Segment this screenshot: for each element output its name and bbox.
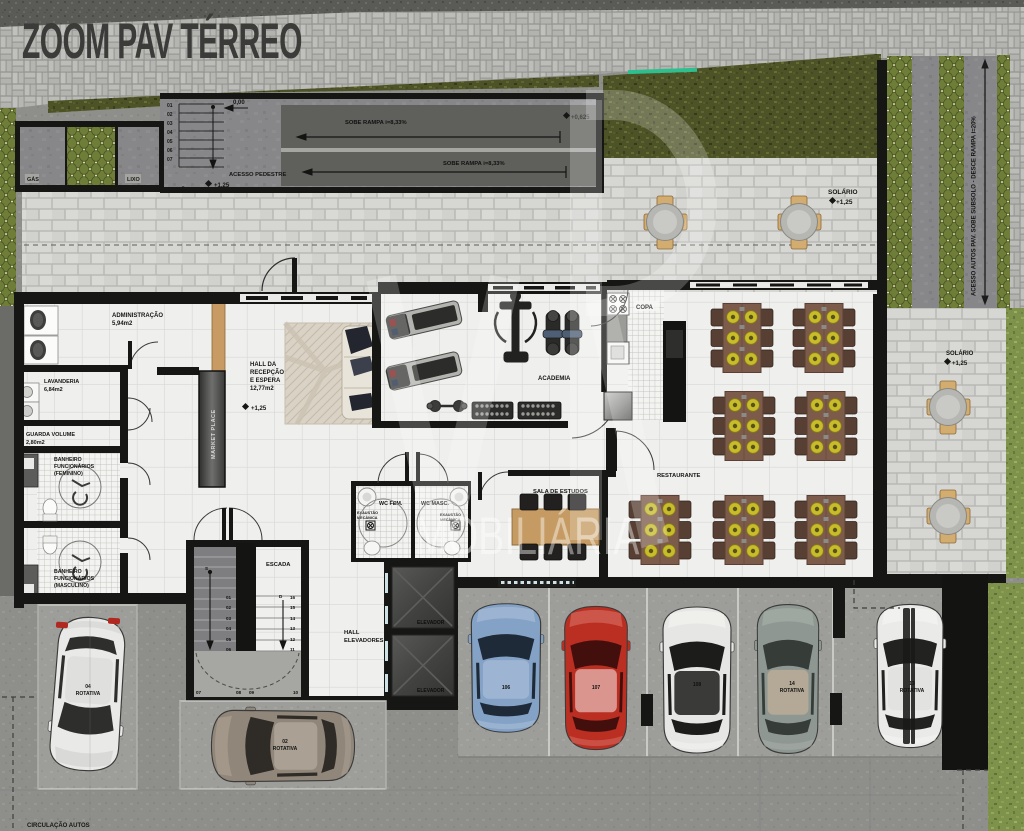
svg-text:6,84m2: 6,84m2 <box>44 387 63 393</box>
svg-text:BANHEIRO: BANHEIRO <box>54 457 82 463</box>
svg-text:+1,25: +1,25 <box>214 183 230 189</box>
svg-text:11: 11 <box>290 647 295 652</box>
svg-text:09: 09 <box>249 690 255 695</box>
svg-text:SOLÁRIO: SOLÁRIO <box>946 350 974 357</box>
svg-text:03: 03 <box>226 616 232 621</box>
svg-text:ZOOM PAV TÉRREO: ZOOM PAV TÉRREO <box>22 13 302 69</box>
svg-text:5,94m2: 5,94m2 <box>112 321 133 327</box>
svg-text:07: 07 <box>167 157 173 163</box>
svg-text:HALL DA: HALL DA <box>250 362 277 368</box>
svg-text:ROTATIVA: ROTATIVA <box>900 688 925 694</box>
svg-text:0,00: 0,00 <box>233 100 245 106</box>
svg-text:E ESPERA: E ESPERA <box>250 378 281 384</box>
svg-text:05: 05 <box>167 139 173 145</box>
svg-text:ESCADA: ESCADA <box>266 562 291 568</box>
svg-text:14: 14 <box>290 616 296 621</box>
svg-text:ADMINISTRAÇÃO: ADMINISTRAÇÃO <box>112 312 163 319</box>
svg-text:WC FEM.: WC FEM. <box>379 501 403 507</box>
svg-text:2,80m2: 2,80m2 <box>26 440 45 446</box>
svg-text:02: 02 <box>226 605 232 610</box>
svg-text:05: 05 <box>226 637 232 642</box>
svg-text:SOBE RAMPA i=8,33%: SOBE RAMPA i=8,33% <box>345 120 407 126</box>
svg-text:02: 02 <box>282 739 288 745</box>
svg-text:01: 01 <box>226 595 232 600</box>
svg-text:SOBE RAMPA i=8,33%: SOBE RAMPA i=8,33% <box>443 161 505 167</box>
svg-text:RESTAURANTE: RESTAURANTE <box>657 473 701 479</box>
svg-text:GUARDA VOLUME: GUARDA VOLUME <box>26 432 75 438</box>
svg-text:06: 06 <box>167 148 173 154</box>
svg-text:04: 04 <box>167 130 173 136</box>
svg-text:MOBILIÁRIA: MOBILIÁRIA <box>415 506 639 565</box>
svg-text:12: 12 <box>290 637 296 642</box>
svg-text:ACESSO PEDESTRE: ACESSO PEDESTRE <box>229 172 286 178</box>
svg-text:13: 13 <box>909 681 915 687</box>
svg-text:10: 10 <box>293 690 299 695</box>
svg-text:HALL: HALL <box>344 630 360 636</box>
svg-text:CIRCULAÇÃO AUTOS: CIRCULAÇÃO AUTOS <box>27 822 90 829</box>
svg-text:16: 16 <box>290 595 296 600</box>
svg-text:106: 106 <box>502 685 511 691</box>
svg-text:+1,25: +1,25 <box>952 361 968 367</box>
svg-text:ROTATIVA: ROTATIVA <box>780 688 805 694</box>
svg-text:108: 108 <box>693 682 702 688</box>
svg-text:FUNCIONÁRIOS: FUNCIONÁRIOS <box>54 575 95 582</box>
svg-text:S: S <box>205 566 208 571</box>
svg-text:MARKET PLACE: MARKET PLACE <box>211 409 217 459</box>
svg-text:06: 06 <box>226 647 232 652</box>
svg-text:03: 03 <box>167 121 173 127</box>
svg-text:+1,25: +1,25 <box>836 199 853 206</box>
svg-text:SOLÁRIO: SOLÁRIO <box>828 187 858 196</box>
svg-text:+1,25: +1,25 <box>251 406 267 412</box>
svg-text:FUNCIONÁRIOS: FUNCIONÁRIOS <box>54 463 95 470</box>
svg-text:BANHEIRO: BANHEIRO <box>54 569 82 575</box>
svg-text:RECEPÇÃO: RECEPÇÃO <box>250 369 284 376</box>
svg-text:ROTATIVA: ROTATIVA <box>273 746 298 752</box>
svg-text:13: 13 <box>290 626 296 631</box>
svg-text:01: 01 <box>167 103 173 109</box>
svg-text:(MASCULINO): (MASCULINO) <box>54 583 89 589</box>
svg-text:15: 15 <box>290 605 296 610</box>
svg-text:12,77m2: 12,77m2 <box>250 386 274 392</box>
svg-text:07: 07 <box>196 690 202 695</box>
svg-text:ELEVADORES: ELEVADORES <box>344 638 384 644</box>
svg-text:08: 08 <box>236 690 242 695</box>
svg-text:(FEMININO): (FEMININO) <box>54 471 83 477</box>
svg-text:107: 107 <box>592 685 601 691</box>
svg-text:02: 02 <box>167 112 173 118</box>
svg-text:LIXO: LIXO <box>127 177 141 183</box>
svg-text:04: 04 <box>226 626 232 631</box>
svg-text:ACESSO AUTOS PAV. SOBE SUBSOL: ACESSO AUTOS PAV. SOBE SUBSOLO - DESCE R… <box>972 116 978 296</box>
svg-text:14: 14 <box>789 681 795 687</box>
svg-text:ACADEMIA: ACADEMIA <box>538 376 571 382</box>
svg-text:PORTÃO: PORTÃO <box>166 186 190 193</box>
svg-text:ELEVADOR: ELEVADOR <box>417 620 445 626</box>
svg-text:LAVANDERIA: LAVANDERIA <box>44 379 79 385</box>
svg-text:ROTATIVA: ROTATIVA <box>76 691 101 697</box>
svg-text:ELEVADOR: ELEVADOR <box>417 688 445 694</box>
svg-text:GÁS: GÁS <box>27 176 39 183</box>
